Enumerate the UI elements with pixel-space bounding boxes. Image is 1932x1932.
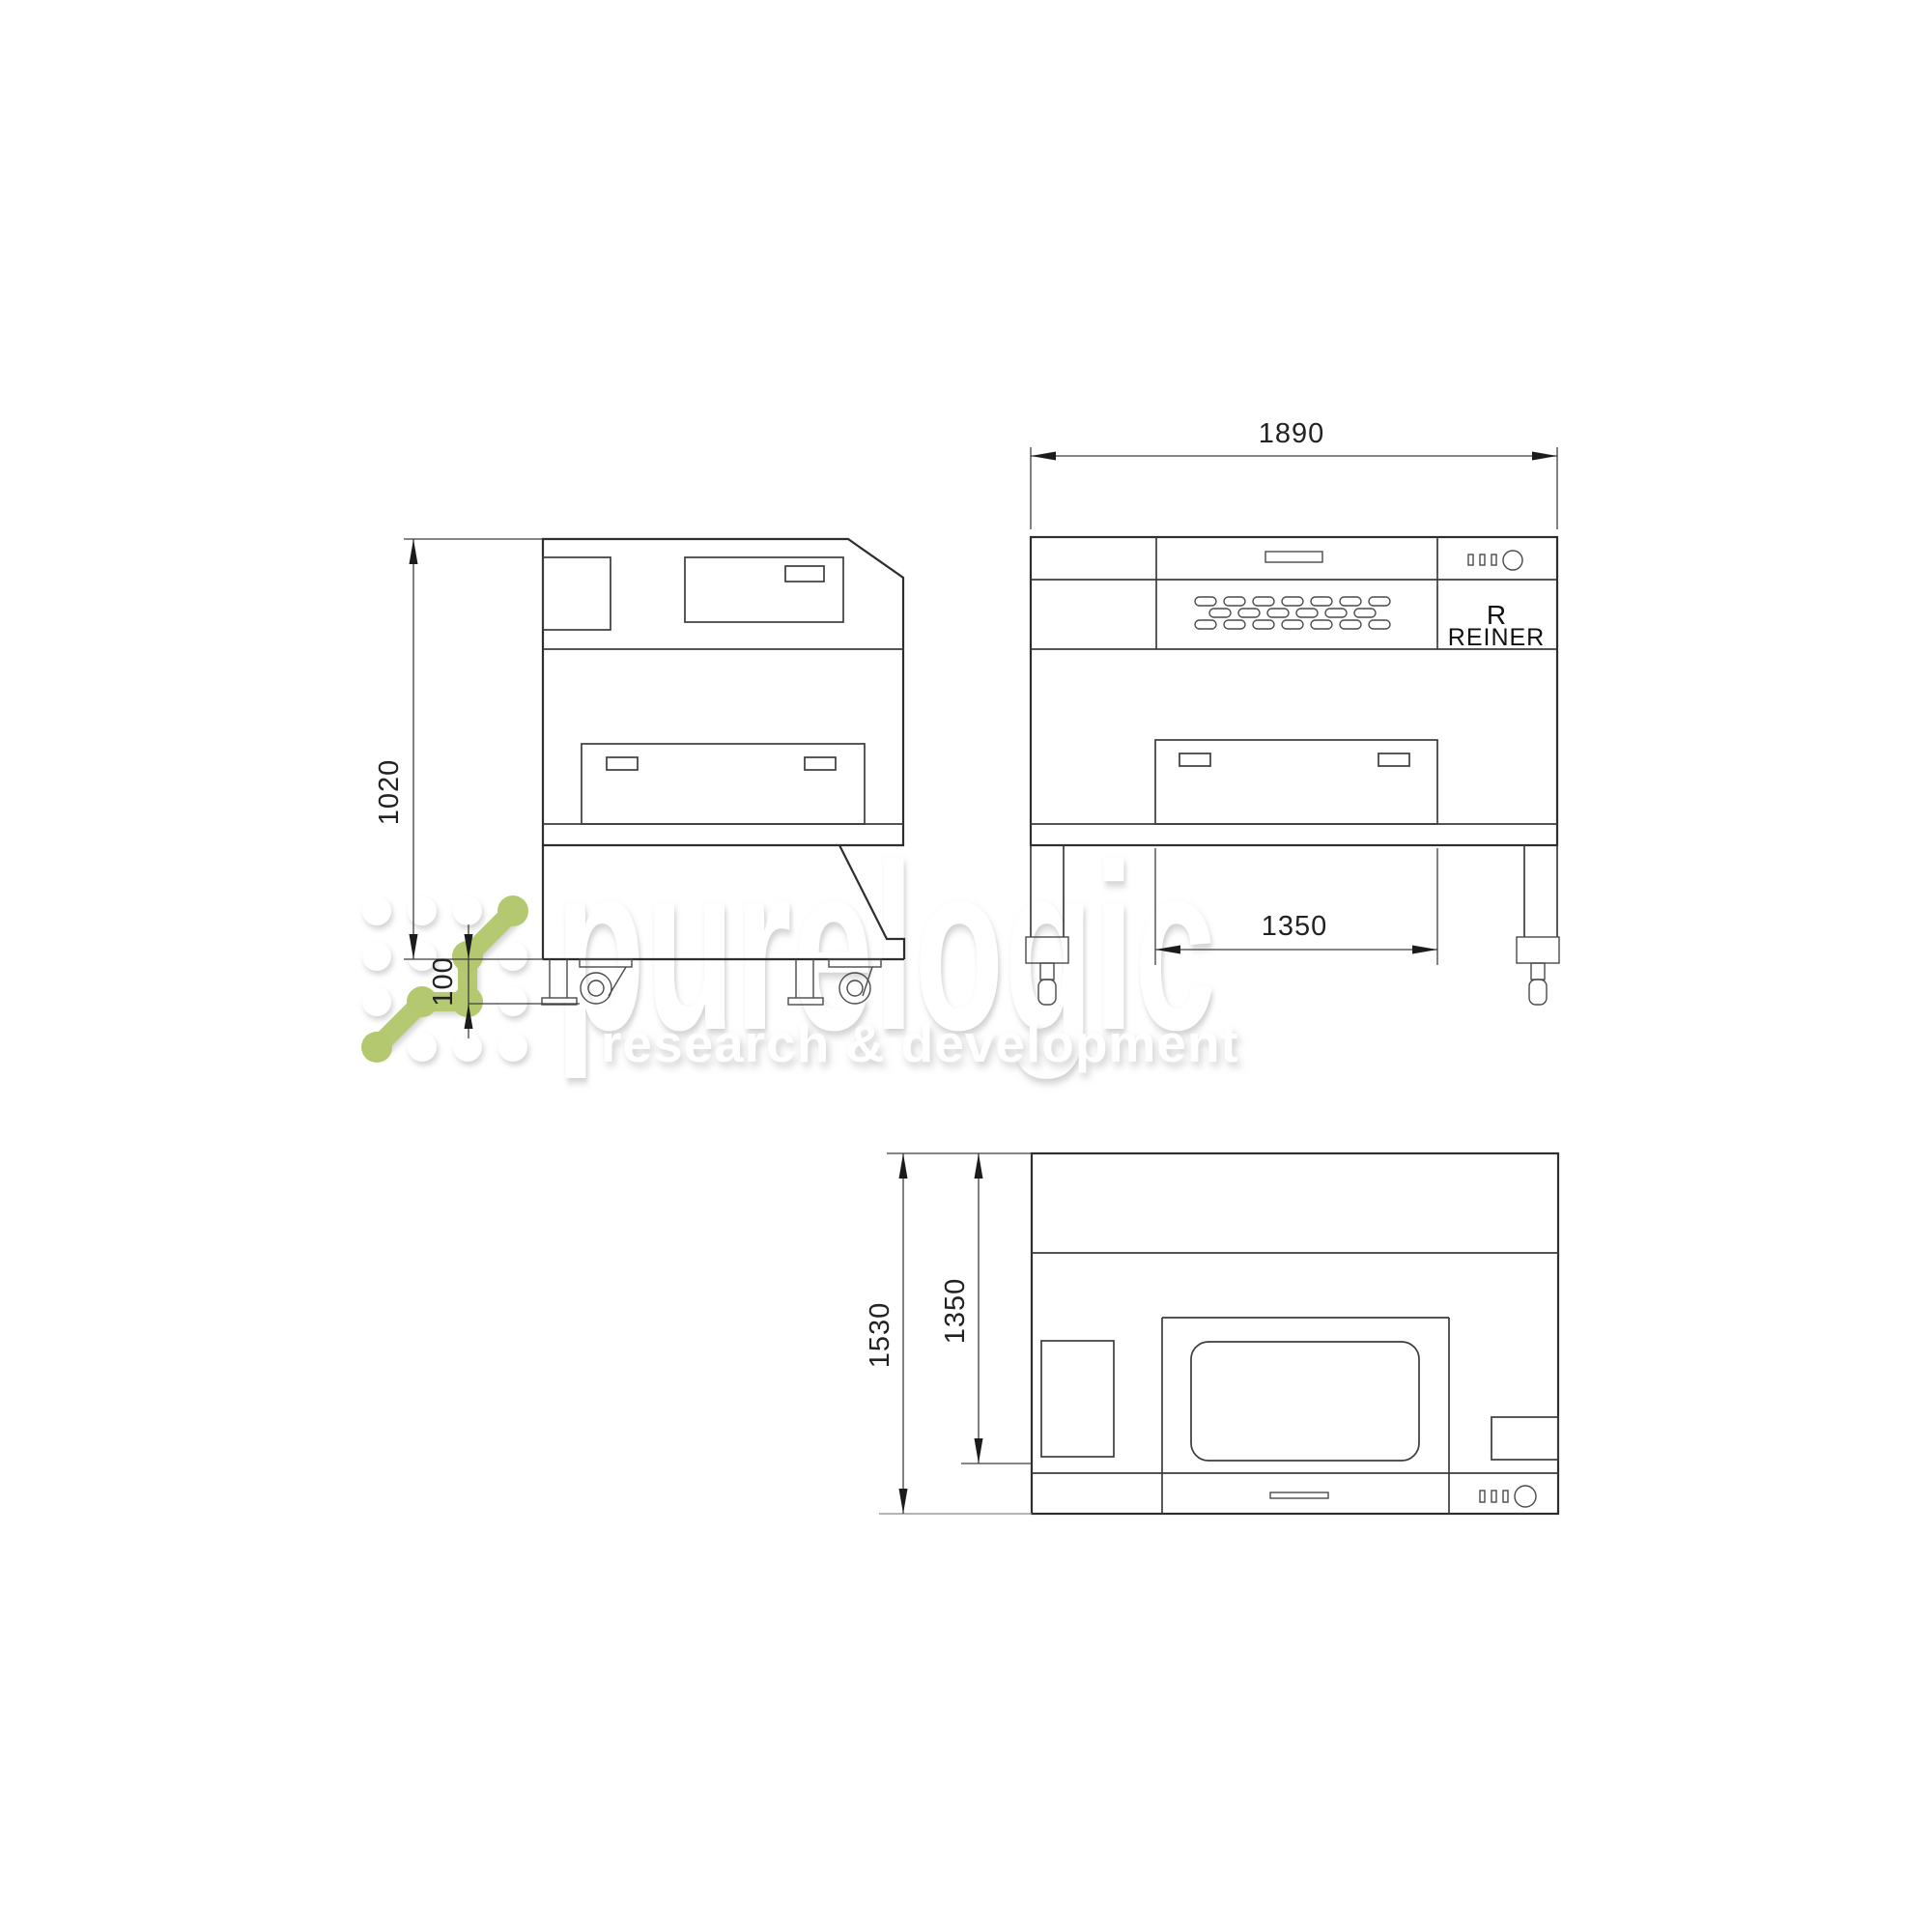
- front-door-handle-right: [1378, 753, 1409, 766]
- top-left-module: [1041, 1341, 1114, 1457]
- logo-dot: [408, 1033, 437, 1062]
- dimension-label: 1350: [940, 1278, 971, 1345]
- side-door-handle-right: [805, 757, 836, 770]
- indicator-led-icon: [1480, 1491, 1485, 1502]
- front-leg-right: [1517, 845, 1559, 1005]
- logo-dot: [362, 896, 391, 925]
- indicator-led-icon: [1480, 554, 1485, 565]
- front-control-cluster: [1468, 551, 1522, 570]
- logo-dot: [498, 1033, 527, 1062]
- logo-green-dot: [497, 895, 528, 926]
- top-control-cluster: [1480, 1486, 1536, 1507]
- top-lid-panel: [1162, 1318, 1449, 1514]
- top-right-module: [1492, 1417, 1558, 1460]
- side-body-outline: [543, 539, 903, 845]
- logo-dot: [498, 942, 527, 971]
- indicator-led-icon: [1492, 554, 1496, 565]
- logo-dot: [453, 1033, 482, 1062]
- front-door: [1155, 740, 1437, 824]
- technical-drawing-canvas: purelogic research & development: [0, 0, 1932, 1932]
- dimension-label: 1020: [374, 759, 405, 826]
- drawing-page: purelogic research & development: [0, 0, 1932, 1932]
- top-viewing-window: [1191, 1342, 1419, 1461]
- side-door-handle-left: [607, 757, 638, 770]
- indicator-led-icon: [1468, 554, 1473, 565]
- top-front-slot: [1270, 1492, 1328, 1498]
- indicator-led-icon: [1492, 1491, 1496, 1502]
- side-door: [582, 744, 865, 824]
- dimension-label: 1890: [1259, 418, 1325, 449]
- front-body-outline: [1031, 537, 1557, 845]
- dimension-front-width: 1890: [1031, 418, 1557, 529]
- front-door-handle-left: [1179, 753, 1210, 766]
- logo-dot: [362, 942, 391, 971]
- dimension-label: 1350: [1262, 911, 1328, 942]
- logo-dot: [453, 896, 482, 925]
- dimension-top-inner-depth: 1350: [940, 1153, 1032, 1463]
- watermark: purelogic research & development: [361, 815, 1239, 1080]
- power-button-icon: [1503, 551, 1522, 570]
- power-button-icon: [1515, 1486, 1536, 1507]
- side-window-right: [685, 557, 843, 622]
- brand-name: REINER: [1448, 624, 1545, 651]
- logo-dot: [408, 896, 437, 925]
- dimension-label: 1530: [865, 1302, 895, 1369]
- watermark-tagline-text: research & development: [601, 1013, 1239, 1073]
- dimension-label: 100: [428, 956, 459, 1006]
- indicator-led-icon: [1503, 1491, 1508, 1502]
- top-view: [1032, 1153, 1558, 1514]
- top-body-outline: [1032, 1153, 1558, 1514]
- logo-green-dot: [361, 1032, 392, 1063]
- side-window-left: [543, 557, 611, 630]
- brand-panel: R REINER: [1448, 600, 1545, 651]
- front-vent-grille: [1195, 597, 1390, 629]
- logo-dot: [362, 987, 391, 1016]
- front-top-slot: [1265, 552, 1322, 562]
- logo-dot: [498, 987, 527, 1016]
- side-window-vent: [785, 566, 824, 582]
